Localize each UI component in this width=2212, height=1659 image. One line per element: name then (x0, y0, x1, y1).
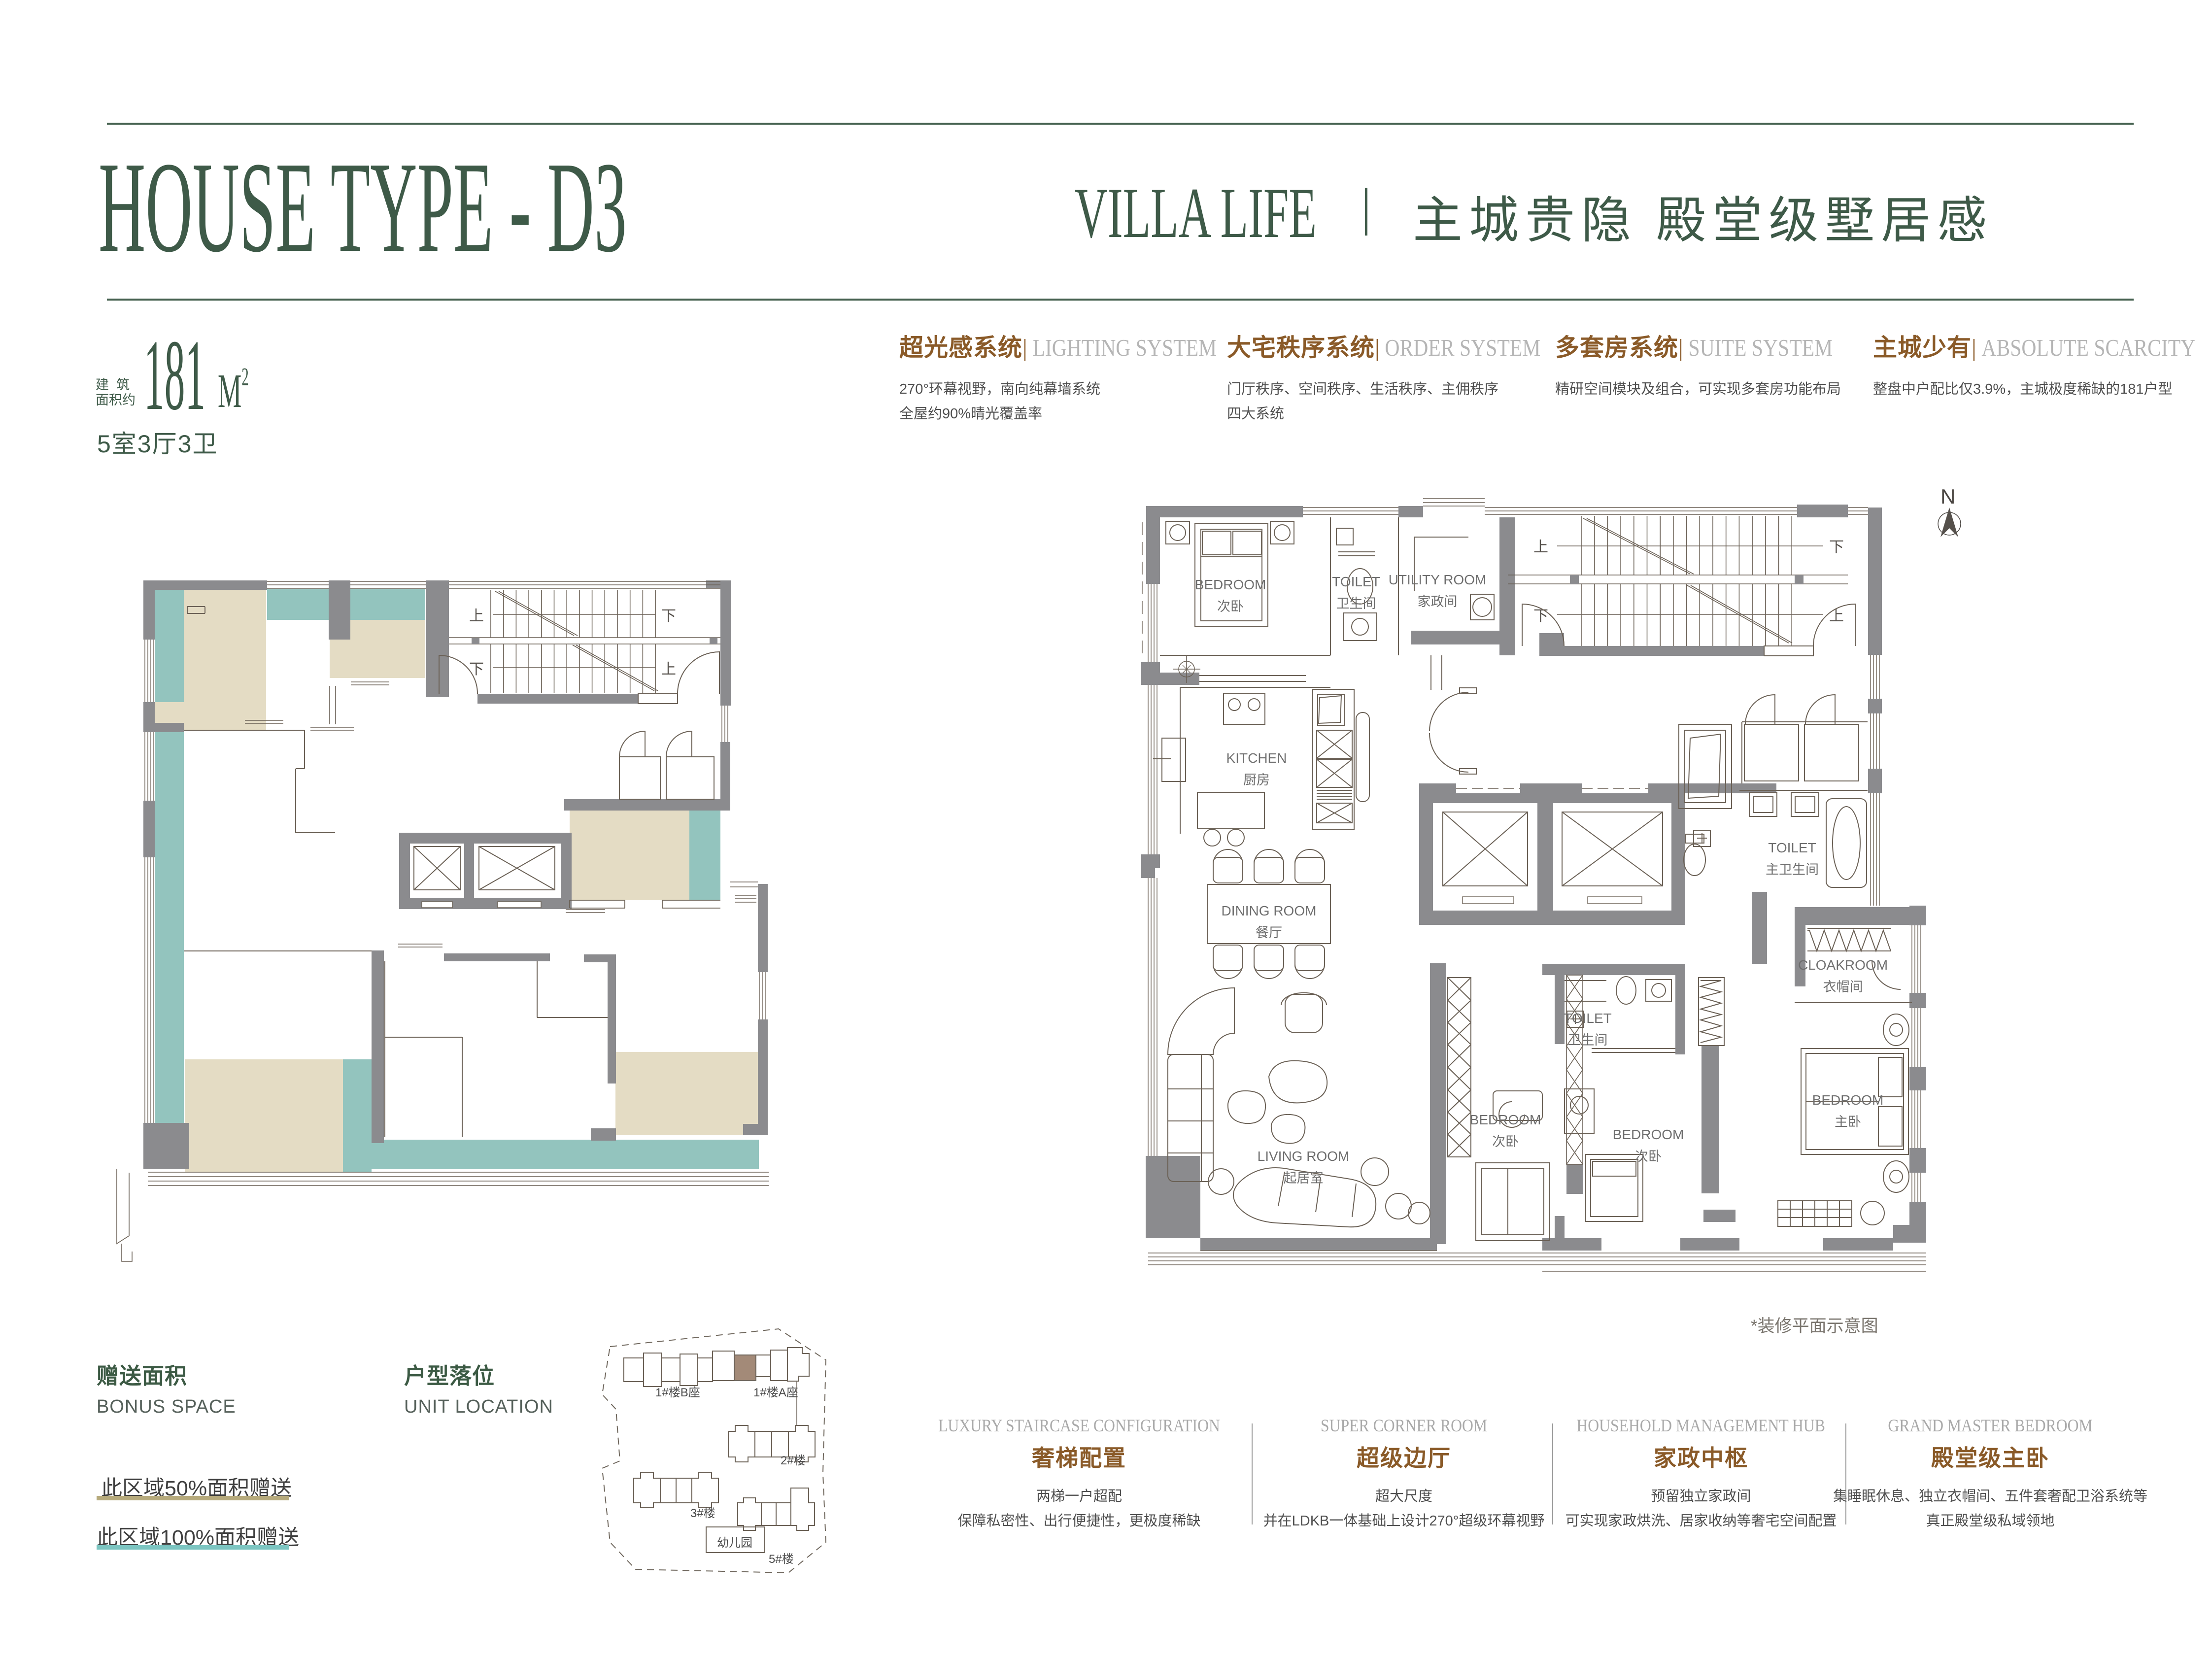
svg-text:1#楼B座: 1#楼B座 (655, 1386, 700, 1399)
svg-text:卫生间: 卫生间 (1336, 596, 1376, 611)
svg-text:衣帽间: 衣帽间 (1823, 980, 1863, 994)
svg-text:BEDROOM: BEDROOM (1470, 1112, 1541, 1127)
svg-text:3#楼: 3#楼 (690, 1507, 715, 1520)
svg-text:餐厅: 餐厅 (1256, 925, 1282, 940)
svg-text:KITCHEN: KITCHEN (1226, 750, 1287, 766)
svg-text:次卧: 次卧 (1217, 599, 1244, 614)
svg-text:下: 下 (1533, 608, 1548, 624)
svg-text:主卫生间: 主卫生间 (1766, 862, 1819, 877)
svg-text:BEDROOM: BEDROOM (1195, 577, 1266, 592)
svg-text:TOILET: TOILET (1768, 840, 1816, 855)
svg-text:5#楼: 5#楼 (769, 1553, 794, 1566)
svg-text:主卧: 主卧 (1835, 1115, 1861, 1129)
svg-text:TOILET: TOILET (1564, 1011, 1612, 1026)
svg-text:CLOAKROOM: CLOAKROOM (1798, 957, 1888, 973)
svg-text:幼儿园: 幼儿园 (717, 1536, 752, 1550)
svg-text:2#楼: 2#楼 (781, 1454, 806, 1467)
svg-text:次卧: 次卧 (1492, 1134, 1519, 1149)
svg-text:家政间: 家政间 (1418, 594, 1458, 609)
svg-text:起居室: 起居室 (1284, 1171, 1324, 1185)
svg-text:厨房: 厨房 (1243, 773, 1270, 787)
svg-text:LIVING ROOM: LIVING ROOM (1258, 1149, 1350, 1164)
svg-text:DINING ROOM: DINING ROOM (1222, 903, 1317, 918)
svg-text:上: 上 (1829, 608, 1844, 624)
svg-text:下: 下 (469, 661, 484, 677)
svg-text:次卧: 次卧 (1635, 1149, 1662, 1164)
svg-text:BEDROOM: BEDROOM (1812, 1092, 1884, 1108)
svg-text:卫生间: 卫生间 (1568, 1033, 1608, 1048)
svg-text:下: 下 (1829, 539, 1844, 555)
svg-text:上: 上 (661, 661, 676, 677)
svg-text:TOILET: TOILET (1332, 574, 1380, 589)
svg-text:上: 上 (1533, 539, 1548, 555)
svg-text:BEDROOM: BEDROOM (1613, 1127, 1684, 1142)
svg-text:N: N (1940, 485, 1955, 508)
svg-text:下: 下 (661, 608, 676, 624)
svg-text:1#楼A座: 1#楼A座 (753, 1386, 798, 1399)
svg-text:UTILITY ROOM: UTILITY ROOM (1389, 572, 1487, 587)
svg-text:上: 上 (469, 608, 484, 624)
